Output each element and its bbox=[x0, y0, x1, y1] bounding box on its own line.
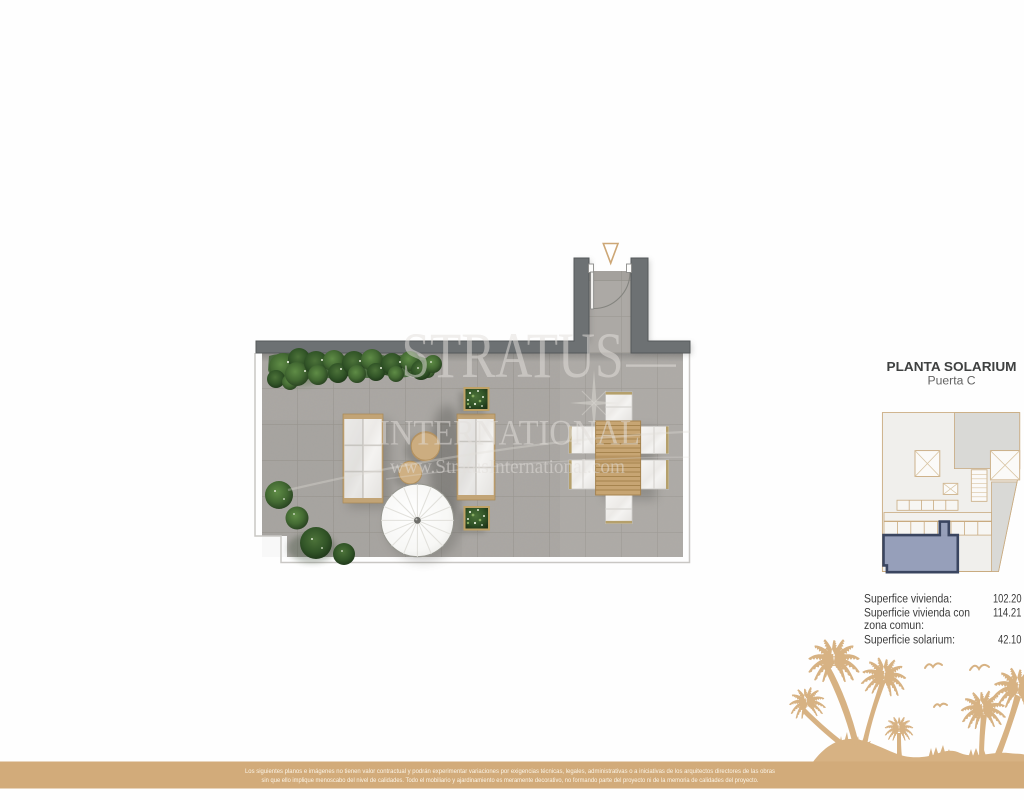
svg-text:114.21: 114.21 bbox=[993, 606, 1022, 620]
svg-text:STRATUS: STRATUS bbox=[402, 319, 624, 391]
svg-text:PLANTA SOLARIUM: PLANTA SOLARIUM bbox=[887, 359, 1017, 374]
svg-text:Superficie solarium:: Superficie solarium: bbox=[864, 632, 955, 646]
svg-text:102.20: 102.20 bbox=[993, 592, 1022, 606]
svg-text:zona comun:: zona comun: bbox=[864, 618, 924, 632]
svg-text:Los siguientes planos e imágen: Los siguientes planos e imágenes no tien… bbox=[245, 769, 775, 775]
svg-text:Superfice vivienda:: Superfice vivienda: bbox=[864, 592, 952, 606]
svg-text:sin que ello implique menoscab: sin que ello implique menoscabo del nive… bbox=[262, 778, 759, 784]
svg-text:INTERNATIONAL: INTERNATIONAL bbox=[379, 413, 640, 453]
svg-text:Puerta C: Puerta C bbox=[928, 376, 976, 388]
svg-text:42.10: 42.10 bbox=[998, 632, 1022, 646]
